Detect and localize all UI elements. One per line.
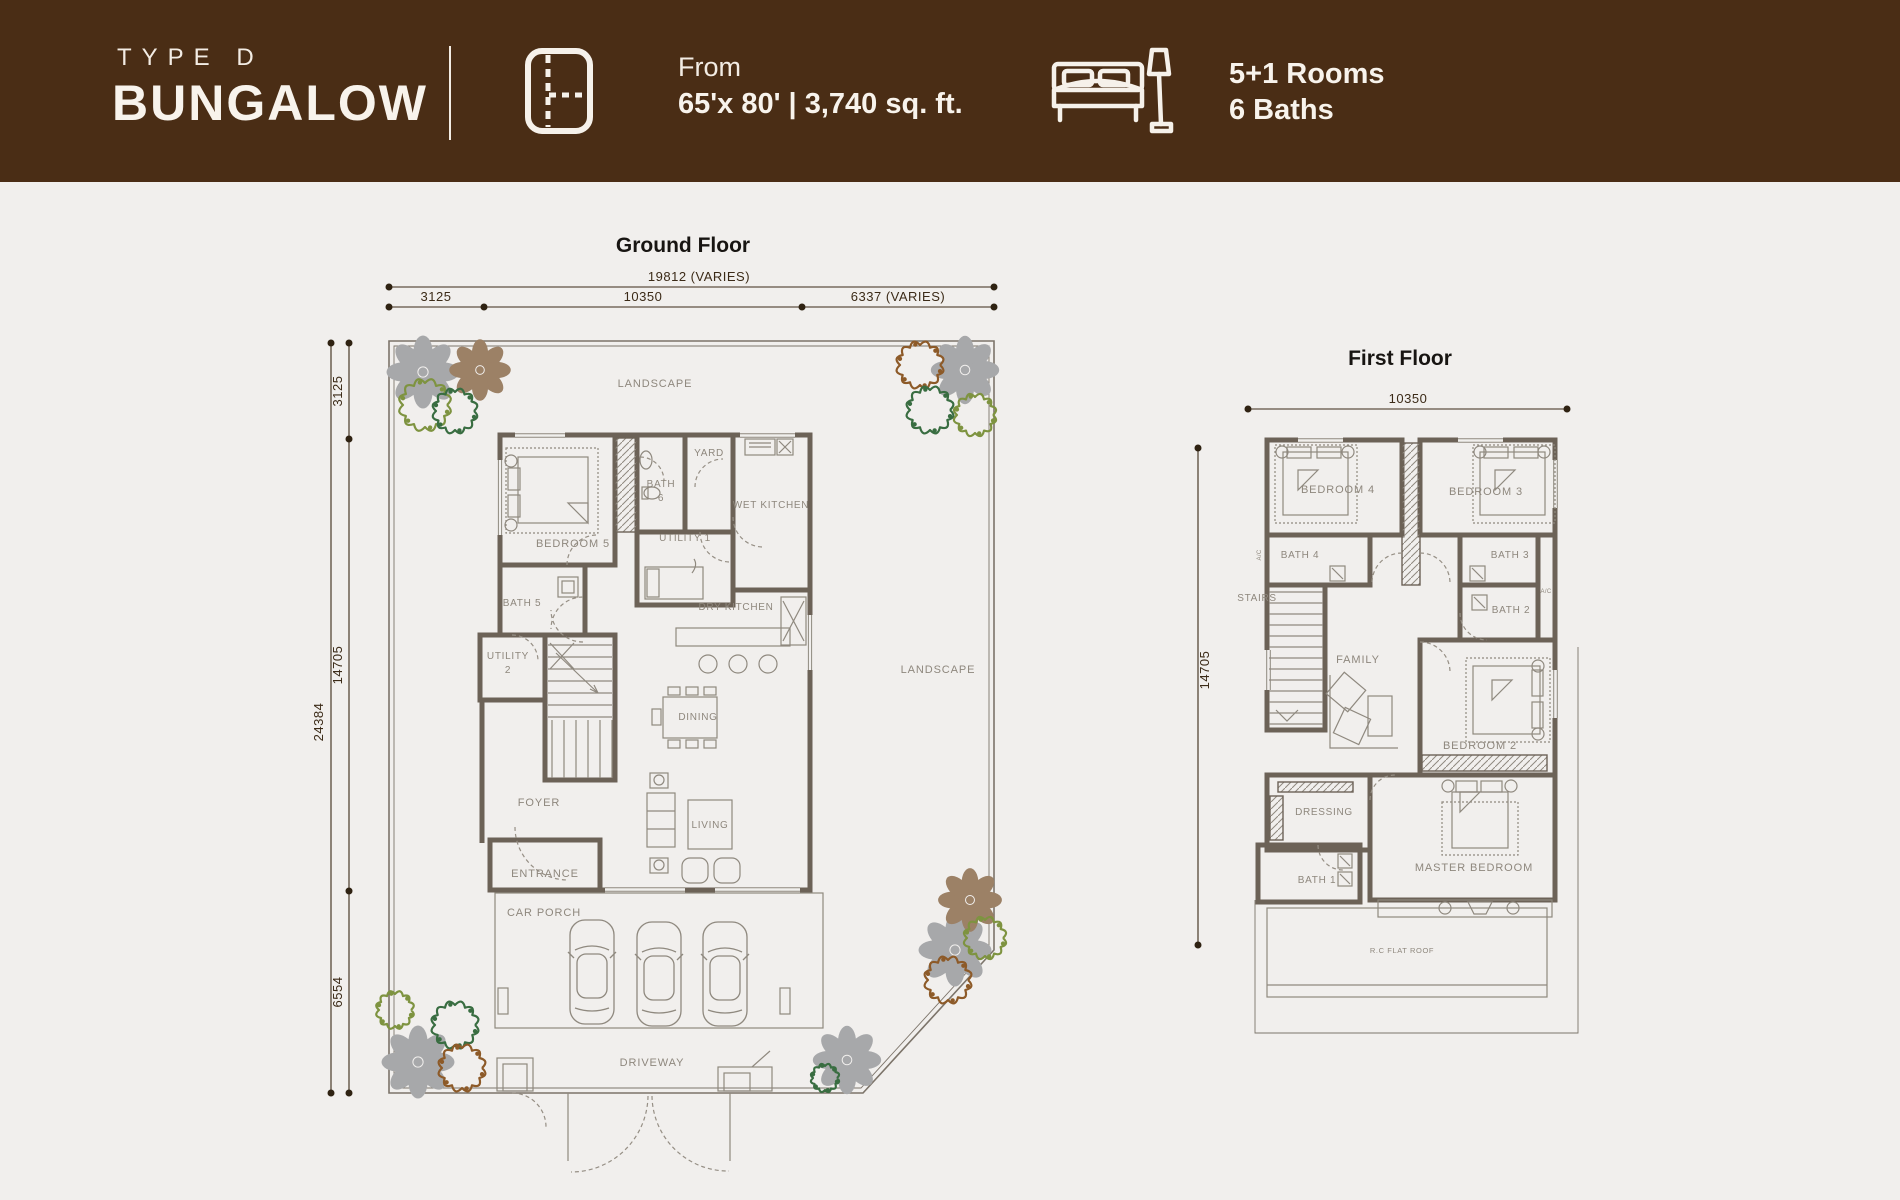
dressing-rail-left [1270,796,1283,840]
family-sofa-set [1326,672,1398,748]
label-dressing: DRESSING [1295,807,1353,818]
wardrobe-strip [615,438,637,532]
label-wet-kitchen: WET KITCHEN [733,500,809,511]
baths-count: 6 Baths [1229,94,1334,127]
ground-floor-title: Ground Floor [616,234,750,257]
first-floor-title: First Floor [1348,347,1452,370]
flower-plant-icon [449,339,511,401]
svg-text:14705: 14705 [330,646,345,685]
svg-text:24384: 24384 [311,703,326,742]
cars [568,920,749,1026]
bed-bedroom3 [1473,445,1555,523]
car-top-view [568,920,616,1024]
bed-lamp-icon [1048,44,1180,140]
header-bar: TYPE D BUNGALOW From 65'x 80' | 3,740 sq… [0,0,1900,182]
label-entrance: ENTRANCE [511,868,579,880]
label-bedroom5: BEDROOM 5 [536,538,610,550]
label-car-porch: CAR PORCH [507,907,581,919]
tree-plant-icon [433,389,478,434]
label-ac-left: A/C [1257,549,1263,560]
ground-top-dimensions: 19812 (VARIES) 3125 10350 6337 (VARIES) [386,269,998,311]
svg-text:10350: 10350 [624,289,663,304]
label-bath3: BATH 3 [1491,550,1529,561]
window-mark [1458,436,1503,445]
first-walls [1258,440,1555,902]
room-wet-kitchen [733,435,810,590]
bed-bedroom5 [505,448,598,533]
label-driveway: DRIVEWAY [620,1057,685,1069]
label-utility2: UTILITY [487,651,529,662]
label-landscape-top: LANDSCAPE [618,378,693,390]
driveway-gates [497,1051,772,1172]
size-text: 65'x 80' | 3,740 sq. ft. [678,88,963,121]
tree-plant-icon [954,394,996,436]
window-mark [515,431,565,440]
label-bath6: BATH [647,479,676,490]
label-master-bedroom: MASTER BEDROOM [1415,862,1533,874]
room-master-bedroom [1370,775,1555,900]
header-divider [449,46,451,140]
label-bedroom2: BEDROOM 2 [1443,740,1517,752]
label-bedroom4: BEDROOM 4 [1301,484,1375,496]
window-mark [806,615,814,670]
svg-text:6554: 6554 [330,977,345,1008]
svg-text:3125: 3125 [421,289,452,304]
first-property-line [1255,647,1578,1033]
car-top-view [701,922,749,1026]
wardrobe-strip-bedroom2 [1422,755,1547,771]
svg-text:6337 (VARIES): 6337 (VARIES) [851,289,945,304]
dressing-rail-top [1278,782,1353,792]
plan-title: BUNGALOW [112,74,428,132]
label-bedroom3: BEDROOM 3 [1449,486,1523,498]
first-floor-plan: First Floor 10350 14705 [1180,340,1620,1060]
ground-left-dimensions: 24384 3125 14705 6554 [311,340,353,1097]
bed-bedroom2 [1466,658,1550,742]
label-dining: DINING [678,712,717,723]
label-family: FAMILY [1336,654,1380,666]
car-top-view [635,922,683,1026]
svg-text:19812 (VARIES): 19812 (VARIES) [648,269,750,284]
label-living: LIVING [692,820,729,831]
bath6-fixtures [640,451,660,499]
wet-kitchen-counter [745,439,793,455]
tree-plant-icon [907,387,954,434]
floorplan-dimension-icon [522,46,604,136]
label-rc-flat-roof: R.C FLAT ROOF [1370,946,1434,955]
first-stairs-treads [1269,592,1323,724]
window-mark [1264,650,1273,690]
rooms-count: 5+1 Rooms [1229,58,1385,91]
tree-plant-icon [432,1002,479,1049]
label-landscape-right: LANDSCAPE [901,664,976,676]
window-mark [1551,670,1560,718]
label-dry-kitchen: DRY KITCHEN [698,602,773,613]
window-mark [496,460,504,535]
type-label: TYPE D [117,44,264,72]
room-entrance [490,840,600,890]
svg-text:10350: 10350 [1389,391,1428,406]
svg-text:6: 6 [658,493,664,504]
ac-ledge [1538,535,1555,640]
window-mark [1298,436,1343,445]
label-utility1: UTILITY 1 [659,533,711,544]
tree-plant-icon [376,991,413,1028]
label-bath2: BATH 2 [1492,605,1530,616]
wardrobe-strip-center [1402,443,1420,585]
from-label: From [678,52,741,83]
label-bath1: BATH 1 [1298,875,1336,886]
svg-text:2: 2 [505,665,511,676]
label-yard: YARD [694,448,724,459]
bed-master [1442,780,1518,855]
flower-plant-icon [919,914,992,987]
label-bath4: BATH 4 [1281,550,1319,561]
svg-text:14705: 14705 [1197,651,1212,690]
first-room-labels: BEDROOM 4 BEDROOM 3 BATH 4 BATH 3 BATH 2… [1237,484,1552,955]
bath-fixtures-first [1330,566,1487,886]
flower-plant-icon [387,336,460,409]
bed-utility1 [645,559,703,599]
label-stairs: STAIRS [1237,593,1277,604]
ground-stairs [548,643,612,778]
flower-plant-icon [813,1026,881,1094]
ground-floor-plan: Ground Floor 19812 (VARIES) 3125 10350 6… [300,225,1030,1200]
label-foyer: FOYER [518,797,560,809]
label-ac-right: A/C [1541,589,1552,595]
svg-text:3125: 3125 [330,376,345,407]
bath5-fixtures [558,577,578,597]
room-utility2 [480,635,545,700]
label-bath5: BATH 5 [503,598,541,609]
